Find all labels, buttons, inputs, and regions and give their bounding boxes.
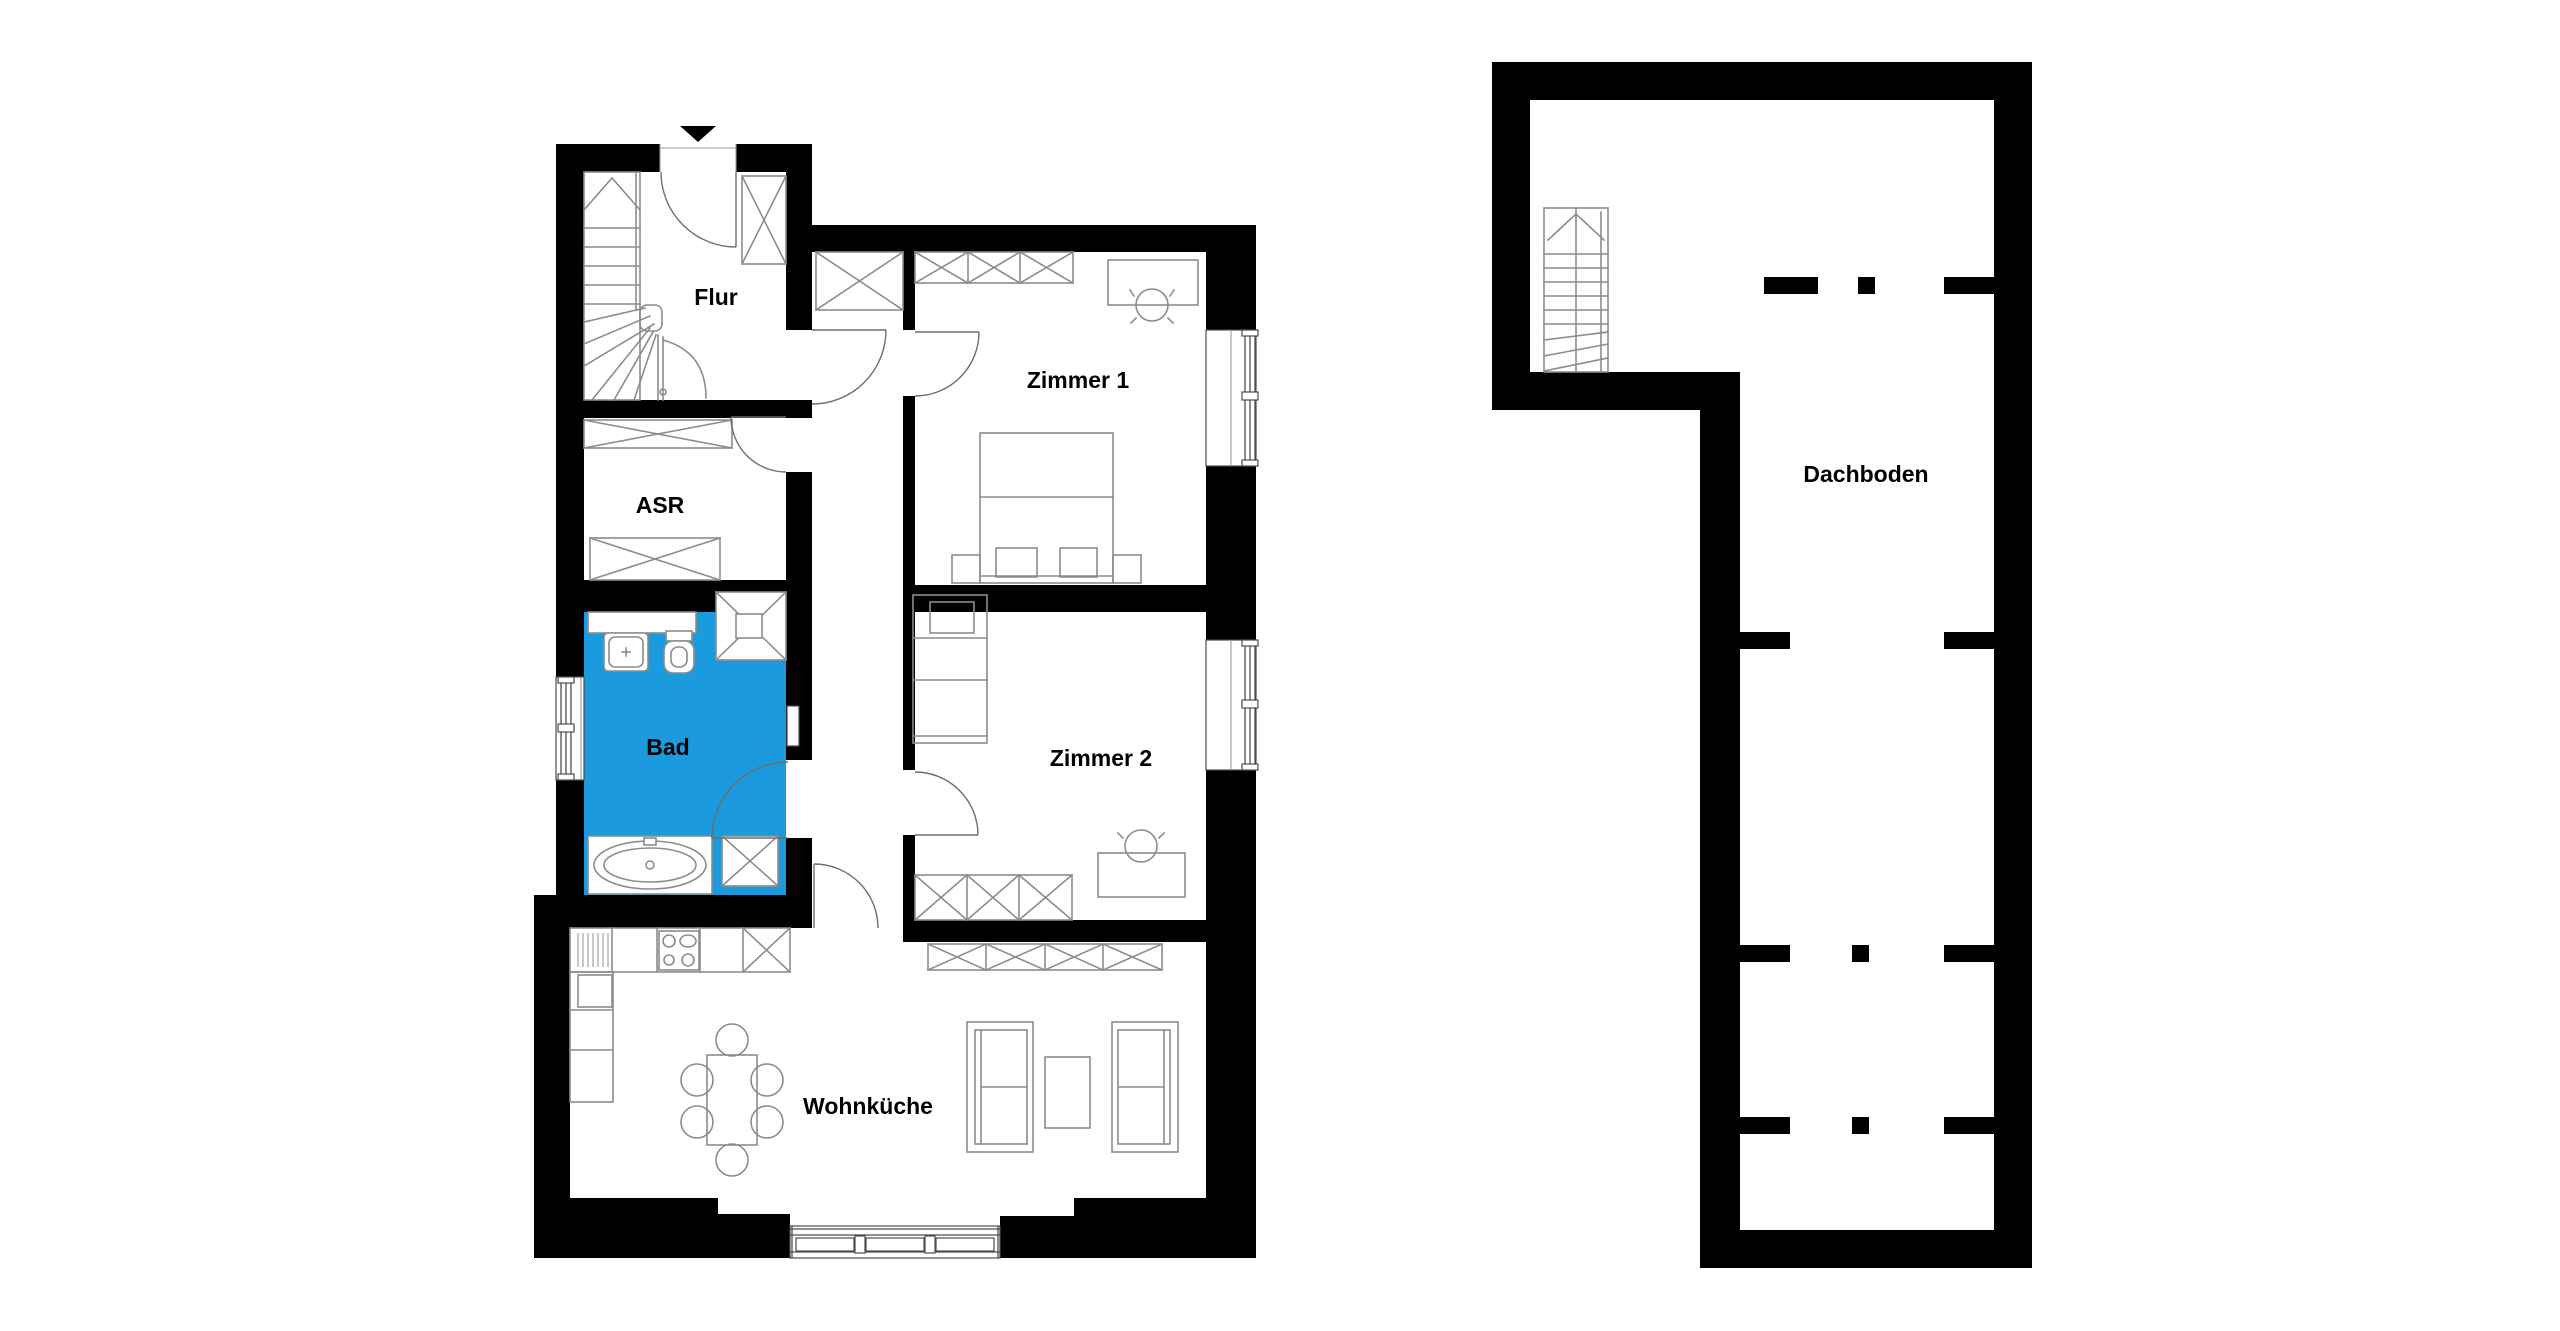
entry-arrow-icon bbox=[680, 126, 716, 142]
shelf-asr-bottom bbox=[590, 538, 720, 580]
kitchen-counter-left bbox=[570, 972, 613, 1102]
fridge bbox=[743, 928, 790, 972]
attic-beam-markers bbox=[1740, 277, 1994, 1134]
door-asr bbox=[731, 417, 786, 472]
apartment-plan: Flur ASR Bad Zimmer 1 Zimmer 2 Wohnküche bbox=[534, 126, 1258, 1258]
dining-table-set bbox=[681, 1024, 783, 1176]
entry-threshold bbox=[660, 144, 736, 172]
room-label-flur: Flur bbox=[694, 284, 737, 310]
staircase-apartment bbox=[584, 172, 706, 400]
desk-zimmer2 bbox=[1098, 830, 1185, 897]
bed-double-zimmer1 bbox=[952, 433, 1141, 583]
wall-niche-bad bbox=[787, 706, 799, 746]
shaft-box-lower bbox=[722, 836, 778, 886]
door-entry bbox=[661, 172, 736, 247]
coffee-table bbox=[1045, 1057, 1090, 1128]
room-label-zimmer2: Zimmer 2 bbox=[1050, 745, 1152, 771]
sink-drainer bbox=[578, 933, 608, 967]
floorplan-canvas: Flur ASR Bad Zimmer 1 Zimmer 2 Wohnküche bbox=[0, 0, 2560, 1331]
room-label-asr: ASR bbox=[636, 492, 685, 518]
room-label-dachboden: Dachboden bbox=[1803, 461, 1928, 487]
sofa-right bbox=[1112, 1022, 1178, 1152]
attic-walls bbox=[1492, 62, 2032, 1268]
sofa-left bbox=[967, 1022, 1033, 1152]
bathtub bbox=[588, 836, 712, 894]
door-hall-wohnkueche bbox=[814, 864, 878, 928]
wardrobe-flur bbox=[742, 176, 786, 264]
room-label-zimmer1: Zimmer 1 bbox=[1027, 367, 1129, 393]
shaft-box-upper bbox=[716, 592, 786, 660]
room-label-bad: Bad bbox=[646, 734, 689, 760]
window-wohnkueche-band bbox=[790, 1226, 1000, 1258]
door-zimmer2 bbox=[915, 772, 978, 835]
window-zimmer2 bbox=[1206, 640, 1258, 770]
bathroom-sink bbox=[604, 633, 648, 671]
bed-single-zimmer2 bbox=[913, 595, 987, 743]
toilet bbox=[664, 631, 694, 673]
kitchen-counter-top bbox=[570, 928, 790, 972]
wardrobe-zimmer2 bbox=[915, 875, 1072, 920]
wardrobe-zimmer1 bbox=[915, 252, 1073, 283]
room-label-wohnkueche: Wohnküche bbox=[803, 1093, 933, 1119]
desk-zimmer1 bbox=[1108, 260, 1198, 323]
wardrobe-hallway bbox=[816, 252, 903, 310]
shelf-asr-top bbox=[584, 420, 732, 448]
door-flur-hall bbox=[812, 330, 886, 404]
window-zimmer1 bbox=[1206, 330, 1258, 466]
stove bbox=[659, 931, 699, 970]
door-zimmer1 bbox=[915, 332, 979, 396]
sideboard-wohnkueche bbox=[928, 944, 1162, 970]
staircase-attic bbox=[1544, 208, 1608, 372]
bathroom-counter bbox=[588, 612, 696, 633]
attic-plan: Dachboden bbox=[1492, 62, 2032, 1268]
window-bad bbox=[556, 677, 584, 780]
